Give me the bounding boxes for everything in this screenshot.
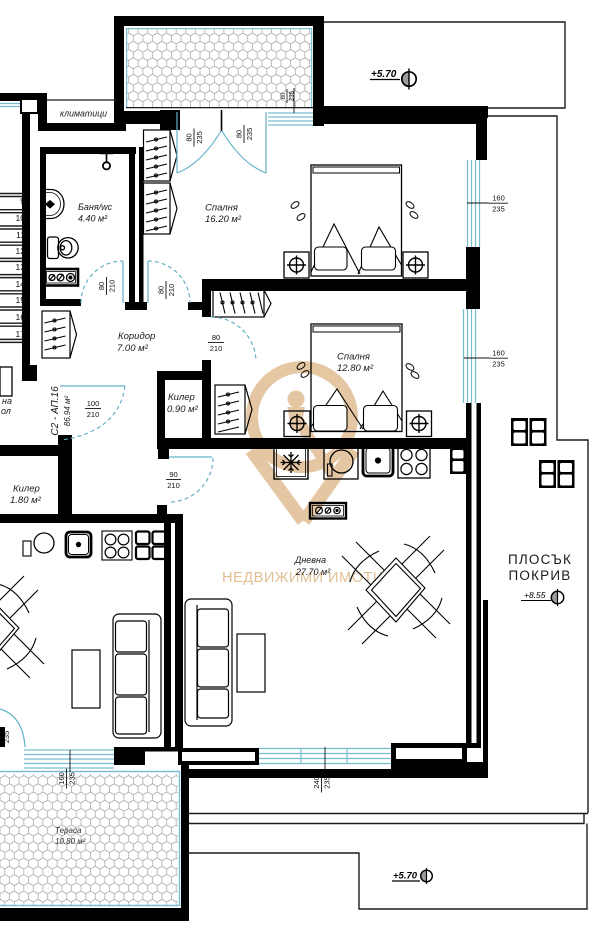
svg-text:климатици: климатици: [60, 109, 107, 119]
svg-text:7.00 м²: 7.00 м²: [117, 343, 149, 354]
svg-text:15: 15: [16, 295, 26, 305]
svg-text:210: 210: [210, 344, 223, 353]
svg-text:4.40 м²: 4.40 м²: [78, 214, 108, 224]
svg-text:ол: ол: [1, 406, 11, 416]
svg-text:Килер: Килер: [13, 484, 40, 495]
svg-text:86.94 м²: 86.94 м²: [63, 395, 72, 426]
svg-text:1.80 м²: 1.80 м²: [10, 495, 42, 506]
svg-text:210: 210: [167, 284, 176, 297]
svg-text:235: 235: [245, 128, 254, 141]
svg-text:235: 235: [492, 205, 505, 214]
svg-text:С2 - АП.16: С2 - АП.16: [50, 386, 61, 436]
svg-text:235: 235: [68, 772, 77, 785]
svg-text:160: 160: [492, 194, 505, 203]
svg-text:13: 13: [16, 262, 26, 272]
svg-text:235: 235: [290, 90, 296, 101]
svg-text:90: 90: [169, 470, 177, 479]
svg-text:+5.70: +5.70: [371, 69, 397, 80]
svg-text:10.80 м²: 10.80 м²: [55, 837, 86, 846]
svg-text:16: 16: [16, 312, 26, 322]
svg-text:80: 80: [97, 282, 106, 290]
svg-text:Коридор: Коридор: [118, 331, 155, 342]
svg-text:80: 80: [212, 333, 220, 342]
svg-text:9: 9: [20, 196, 25, 206]
svg-text:17: 17: [16, 329, 26, 339]
svg-text:Спалня: Спалня: [337, 352, 370, 363]
svg-text:на: на: [2, 396, 12, 406]
svg-text:210: 210: [167, 481, 180, 490]
svg-text:+5.70: +5.70: [393, 871, 418, 882]
svg-text:Килер: Килер: [168, 392, 195, 403]
svg-text:100: 100: [87, 399, 100, 408]
svg-text:14: 14: [16, 279, 26, 289]
svg-text:+8.55: +8.55: [524, 590, 546, 600]
svg-text:Тераса: Тераса: [55, 826, 82, 835]
svg-text:240: 240: [312, 776, 321, 789]
svg-text:0.90 м²: 0.90 м²: [167, 404, 199, 415]
svg-text:80: 80: [157, 286, 166, 294]
svg-text:11: 11: [16, 230, 25, 240]
svg-text:ПОКРИВ: ПОКРИВ: [509, 568, 572, 583]
svg-text:Дневна: Дневна: [294, 555, 326, 565]
svg-text:160: 160: [57, 772, 66, 785]
svg-text:80: 80: [185, 133, 194, 141]
svg-text:12.80 м²: 12.80 м²: [337, 363, 374, 374]
svg-text:16.20 м²: 16.20 м²: [205, 214, 242, 225]
svg-text:235: 235: [492, 360, 505, 369]
svg-text:210: 210: [87, 410, 100, 419]
svg-text:160: 160: [492, 349, 505, 358]
svg-text:80: 80: [281, 92, 287, 99]
svg-text:235: 235: [323, 776, 332, 789]
svg-text:80: 80: [235, 130, 244, 138]
svg-text:Спалня: Спалня: [205, 203, 238, 214]
svg-text:235: 235: [195, 131, 204, 144]
svg-text:27.70 м²: 27.70 м²: [295, 567, 331, 577]
svg-text:Баня/wc: Баня/wc: [78, 202, 113, 212]
svg-text:235: 235: [2, 731, 11, 744]
svg-text:210: 210: [108, 280, 117, 293]
svg-text:12: 12: [16, 246, 26, 256]
svg-text:ПЛОСЪК: ПЛОСЪК: [508, 552, 572, 567]
svg-text:10: 10: [16, 213, 26, 223]
